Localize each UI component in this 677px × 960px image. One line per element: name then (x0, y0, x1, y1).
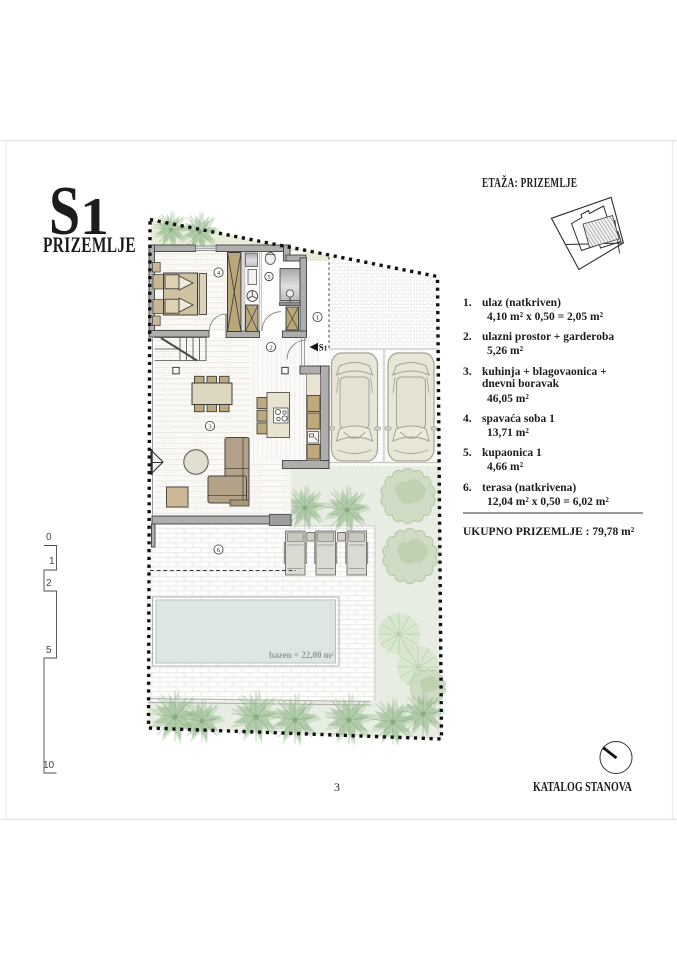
svg-text:2: 2 (269, 344, 272, 351)
svg-text:S1: S1 (319, 343, 328, 353)
svg-text:1: 1 (316, 314, 319, 321)
